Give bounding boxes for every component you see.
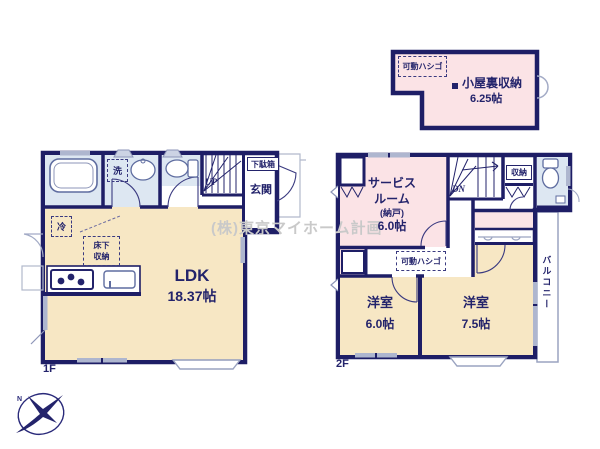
west-room-closet (342, 251, 364, 273)
stairs-up-label: UP (205, 177, 217, 187)
west-room (340, 277, 418, 355)
stairs-down-label: DN (452, 184, 465, 194)
back-door-arc (24, 234, 43, 257)
attic-name-label: 小屋裏収納 (462, 77, 522, 91)
window (60, 151, 90, 156)
storage-label: 収納 (506, 165, 532, 180)
west-room-size-label: 6.0帖 (354, 318, 406, 332)
attic-ladder-label: 可動ハシゴ (398, 56, 447, 77)
service-room-size-label: 6.0帖 (352, 220, 432, 234)
floor1-label: 1F (43, 363, 56, 376)
shoe-box-label: 下駄箱 (247, 157, 279, 171)
upper-hall (473, 212, 533, 230)
floor2-label: 2F (336, 358, 349, 371)
balcony-door (533, 306, 538, 346)
west-room-label: 洋室 (356, 296, 404, 311)
balcony-label: バルコニー (541, 255, 551, 310)
sink-icon (131, 159, 155, 180)
window (566, 166, 571, 186)
logo-north-label: N (17, 396, 22, 404)
window-mark (331, 186, 338, 198)
toilet-icon (166, 160, 198, 177)
window (43, 296, 48, 330)
attic-size-label: 6.25帖 (470, 93, 502, 106)
east-room-size-label: 7.5帖 (450, 318, 502, 332)
underfloor-line1: 床下 (94, 240, 110, 251)
kitchen-counter (45, 266, 141, 296)
entrance-door-arc (277, 165, 296, 201)
east-room-label: 洋室 (452, 296, 500, 311)
service-room-label-3: (納戸) (352, 208, 432, 218)
porch-outline (279, 154, 306, 217)
service-room-label-1: サービス (352, 177, 432, 191)
stove-icon (51, 270, 93, 289)
underfloor-line2: 収納 (94, 251, 110, 262)
fridge-label: 冷 (51, 216, 72, 237)
ldk-label: LDK (160, 266, 224, 286)
ladder-label-2f: 可動ハシゴ (396, 251, 446, 271)
kitchen-sink-icon (104, 271, 135, 288)
bathtub-icon (50, 159, 97, 192)
ldk-size-label: 18.37帖 (147, 288, 237, 304)
balcony-door (533, 282, 538, 304)
floorplan-image: (株)東京マイホーム計画 可動ハシゴ 小屋裏収納 6.25帖 洗 下駄箱 玄関 … (0, 0, 600, 449)
floor1-plan (22, 150, 306, 369)
vent (163, 150, 182, 157)
service-room-label-2: ルーム (352, 193, 432, 207)
underfloor-storage-label: 床下 収納 (83, 236, 120, 266)
bay-window (173, 360, 240, 369)
attic-bullet (452, 83, 458, 89)
bay-window (450, 357, 507, 366)
washer-label: 洗 (107, 159, 128, 182)
entrance-label: 玄関 (250, 184, 272, 197)
window (241, 237, 246, 263)
vent (114, 150, 133, 157)
window-mark (331, 279, 338, 291)
